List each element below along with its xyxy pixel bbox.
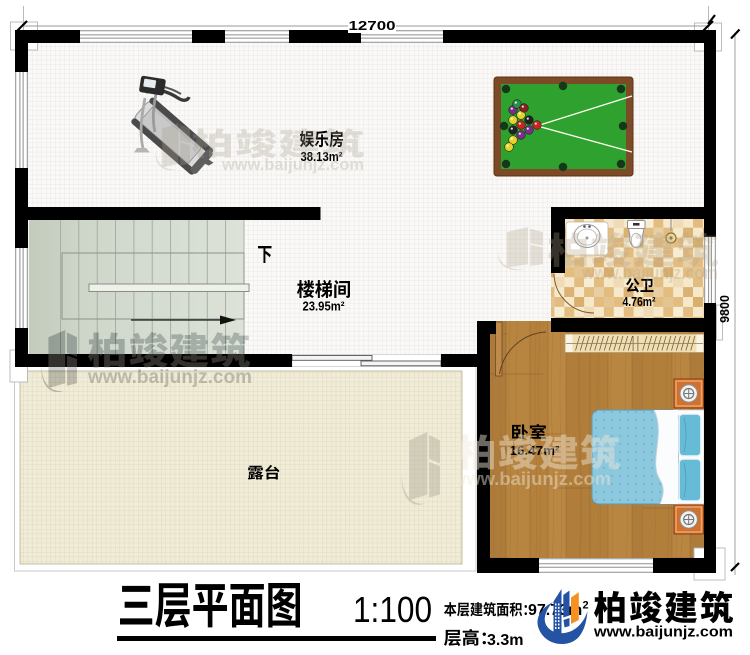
svg-text:3.3m: 3.3m bbox=[487, 632, 523, 649]
svg-text:2: 2 bbox=[583, 600, 589, 612]
svg-text:12700: 12700 bbox=[349, 19, 396, 33]
svg-text:www.baijunjz.com: www.baijunjz.com bbox=[593, 625, 733, 641]
svg-text:9800: 9800 bbox=[718, 295, 732, 323]
svg-text:www.baijunjz.com: www.baijunjz.com bbox=[581, 262, 718, 283]
svg-text:www.baijunjz.com: www.baijunjz.com bbox=[221, 156, 364, 174]
svg-text:www.baijunjz.com: www.baijunjz.com bbox=[451, 469, 611, 489]
svg-text:23.95m²: 23.95m² bbox=[303, 300, 345, 314]
svg-text:4.76m²: 4.76m² bbox=[623, 295, 656, 309]
svg-text:1:100: 1:100 bbox=[353, 589, 432, 630]
svg-text:www.baijunjz.com: www.baijunjz.com bbox=[87, 367, 252, 388]
